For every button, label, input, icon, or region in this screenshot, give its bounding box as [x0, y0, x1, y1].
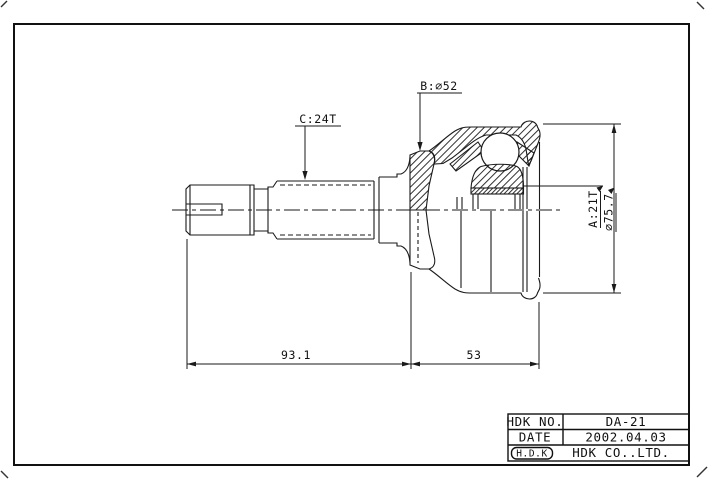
title-row1-label: HDK NO. [507, 414, 564, 429]
dim-93-1-text: 93.1 [281, 348, 311, 362]
drawing-number: DA-21 [606, 414, 647, 429]
drawing-frame [14, 24, 689, 465]
drawing-date: 2002.04.03 [585, 430, 666, 445]
label-c-spline: C:24T [299, 112, 337, 126]
label-b-diameter: B:∅52 [420, 79, 458, 93]
hdk-logo-text: H.D.K [516, 449, 548, 460]
inner-race-section [471, 164, 524, 188]
dim-53-text: 53 [466, 348, 481, 362]
engineering-drawing: B:∅52 C:24T 93.1 53 A:21T ∅75.7 HDK NO. … [0, 0, 720, 479]
label-a-spline: A:21T [586, 190, 600, 228]
title-row2-label: DATE [519, 430, 552, 445]
company-name: HDK CO..LTD. [572, 445, 670, 460]
inner-spline-band [471, 188, 524, 194]
drawing-sheet: B:∅52 C:24T 93.1 53 A:21T ∅75.7 HDK NO. … [0, 0, 720, 479]
dim-75-7-text: ∅75.7 [602, 193, 616, 231]
